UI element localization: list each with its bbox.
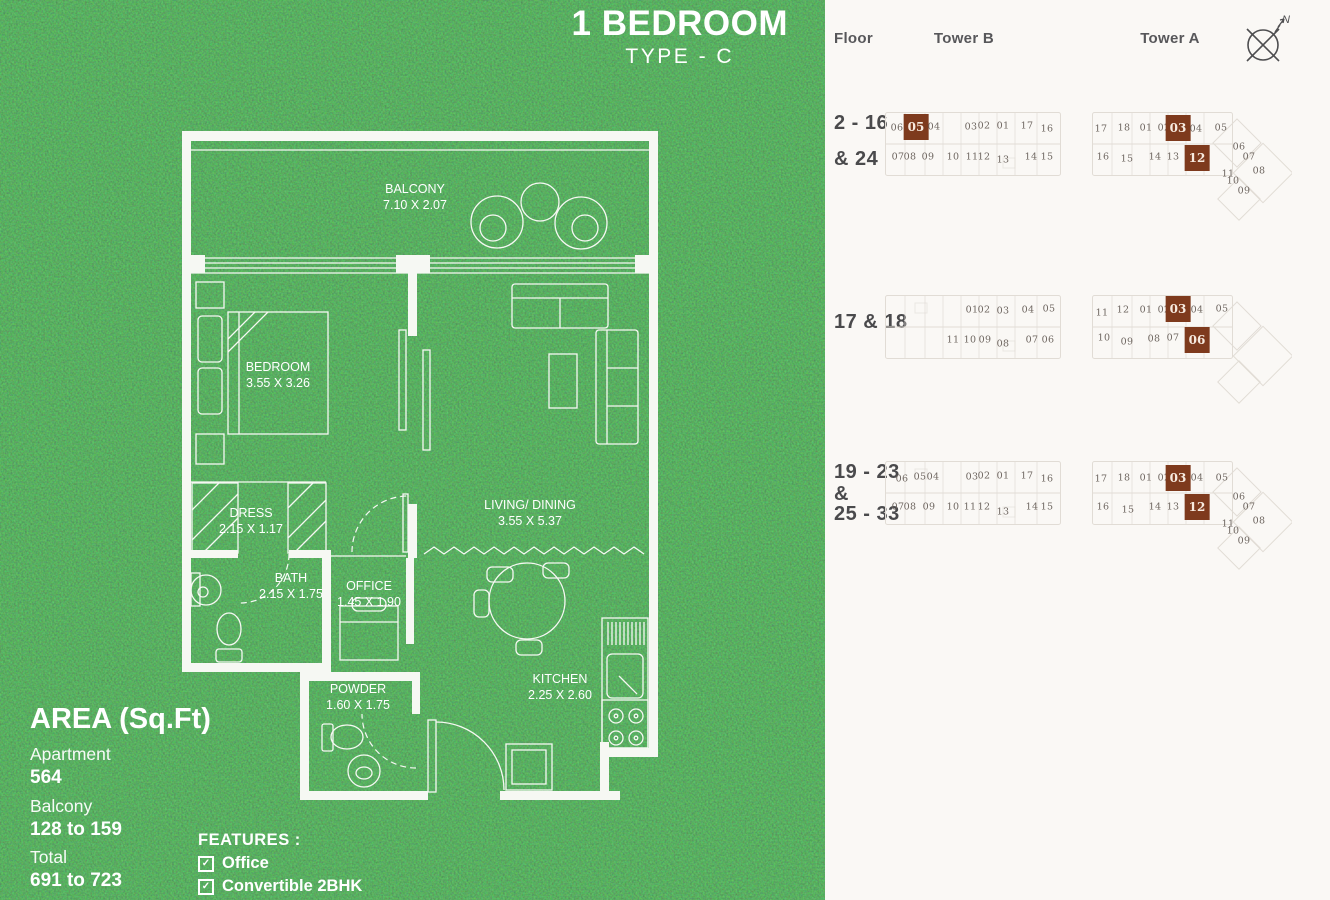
unit-13: 13: [1167, 152, 1180, 163]
unit-01: 01: [997, 121, 1010, 132]
unit-09: 09: [923, 502, 936, 513]
unit-10: 10: [964, 335, 977, 346]
bedroom-door-leaf: [403, 494, 408, 552]
unit-06: 06: [891, 123, 904, 134]
unit-04: 04: [928, 122, 941, 133]
balcony-furniture: [471, 183, 607, 249]
feature-label: Convertible 2BHK: [222, 877, 362, 896]
area-item-total: Total 691 to 723: [30, 847, 122, 892]
sliding-panel: [399, 330, 406, 430]
closet-zigzag: [424, 547, 644, 554]
unit-05: 05: [914, 472, 927, 483]
room-name: POWDER: [326, 681, 390, 697]
room-label-kitchen: KITCHEN2.25 X 2.60: [528, 671, 592, 704]
compass-icon: N: [1239, 12, 1291, 68]
unit-15: 15: [1121, 154, 1134, 165]
unit-15: 15: [1122, 505, 1135, 516]
features-block: FEATURES : ✓ Office ✓ Convertible 2BHK: [198, 831, 362, 896]
room-label-living: LIVING/ DINING3.55 X 5.37: [484, 497, 576, 530]
unit-01: 01: [1140, 123, 1153, 134]
room-dimensions: 2.15 X 1.17: [219, 521, 283, 537]
room-label-bedroom: BEDROOM3.55 X 3.26: [246, 359, 311, 392]
feature-label: Office: [222, 854, 269, 873]
area-item-balcony: Balcony 128 to 159: [30, 796, 122, 841]
unit-08: 08: [904, 502, 917, 513]
unit-04: 04: [1191, 473, 1204, 484]
room-label-bath: BATH2.15 X 1.75: [259, 570, 323, 603]
unit-18: 18: [1118, 473, 1131, 484]
features-heading: FEATURES :: [198, 831, 362, 850]
unit-08: 08: [1253, 166, 1266, 177]
unit-15: 15: [1041, 502, 1054, 513]
unit-06-highlighted: 06: [1185, 327, 1210, 353]
room-dimensions: 7.10 X 2.07: [383, 197, 447, 213]
room-name: KITCHEN: [528, 671, 592, 687]
plan-title: 1 BEDROOM TYPE - C: [572, 6, 788, 69]
room-label-office: OFFICE1.45 X 1.90: [337, 578, 401, 611]
area-label: Balcony: [30, 796, 122, 817]
unit-03: 03: [966, 472, 979, 483]
unit-04: 04: [1191, 305, 1204, 316]
north-label: N: [1282, 14, 1290, 26]
room-name: BEDROOM: [246, 359, 311, 375]
room-dimensions: 2.15 X 1.75: [259, 586, 323, 602]
unit-13: 13: [997, 507, 1010, 518]
unit-07: 07: [1167, 333, 1180, 344]
sliding-panel: [423, 350, 430, 450]
unit-17: 17: [1021, 471, 1034, 482]
unit-09: 09: [922, 152, 935, 163]
area-value: 128 to 159: [30, 819, 122, 841]
kitchen-sink: [607, 654, 643, 698]
unit-18: 18: [1118, 123, 1131, 134]
room-label-balcony: BALCONY7.10 X 2.07: [383, 181, 447, 214]
bath-fixtures: [191, 573, 242, 662]
unit-08: 08: [904, 152, 917, 163]
room-label-dress: DRESS2.15 X 1.17: [219, 505, 283, 538]
unit-12: 12: [978, 152, 991, 163]
keyplan-panel: Floor Tower B Tower A N 2 - 16 & 24 17 &…: [825, 0, 1330, 900]
area-value: 564: [30, 767, 111, 789]
unit-07: 07: [1243, 152, 1256, 163]
unit-01: 01: [966, 305, 979, 316]
feature-item-office: ✓ Office: [198, 854, 362, 873]
plan-section: 1 BEDROOM TYPE - C BALCONY7.10 X 2.07BED…: [0, 0, 825, 900]
entry-cabinet: [506, 744, 552, 790]
unit-07: 07: [1243, 502, 1256, 513]
floor-plan-drawing: [0, 0, 825, 900]
unit-06: 06: [896, 474, 909, 485]
unit-12-highlighted: 12: [1185, 494, 1210, 520]
area-item-apartment: Apartment 564: [30, 744, 111, 789]
unit-13: 13: [1167, 502, 1180, 513]
title-main: 1 BEDROOM: [572, 6, 788, 43]
powder-fixtures: [322, 724, 380, 787]
unit-02: 02: [978, 471, 991, 482]
header-floor: Floor: [834, 30, 873, 47]
sofa: [512, 284, 638, 444]
unit-03: 03: [997, 306, 1010, 317]
unit-17: 17: [1095, 474, 1108, 485]
title-sub: TYPE - C: [625, 45, 734, 69]
unit-16: 16: [1041, 124, 1054, 135]
room-dimensions: 3.55 X 3.26: [246, 375, 311, 391]
unit-07: 07: [1026, 335, 1039, 346]
unit-02: 02: [978, 121, 991, 132]
unit-03: 03: [965, 122, 978, 133]
entry-door: [428, 720, 552, 792]
unit-10: 10: [1098, 333, 1111, 344]
unit-14: 14: [1149, 502, 1162, 513]
unit-01: 01: [997, 471, 1010, 482]
unit-02: 02: [978, 305, 991, 316]
brochure-page: 1 BEDROOM TYPE - C BALCONY7.10 X 2.07BED…: [0, 0, 1330, 900]
room-name: LIVING/ DINING: [484, 497, 576, 513]
unit-09: 09: [1121, 337, 1134, 348]
side-table: [549, 354, 577, 408]
room-dimensions: 1.60 X 1.75: [326, 697, 390, 713]
room-name: DRESS: [219, 505, 283, 521]
room-name: OFFICE: [337, 578, 401, 594]
unit-05: 05: [1216, 304, 1229, 315]
unit-01: 01: [1140, 305, 1153, 316]
room-dimensions: 3.55 X 5.37: [484, 513, 576, 529]
unit-16: 16: [1097, 152, 1110, 163]
unit-16: 16: [1041, 474, 1054, 485]
area-value: 691 to 723: [30, 870, 122, 892]
unit-14: 14: [1026, 502, 1039, 513]
room-label-powder: POWDER1.60 X 1.75: [326, 681, 390, 714]
unit-10: 10: [947, 502, 960, 513]
kitchen-counter: [602, 618, 648, 748]
unit-17: 17: [1021, 121, 1034, 132]
unit-11: 11: [964, 502, 977, 513]
unit-05: 05: [1215, 123, 1228, 134]
unit-07: 07: [892, 152, 905, 163]
unit-11: 11: [1096, 308, 1109, 319]
check-icon: ✓: [198, 856, 214, 872]
unit-05: 05: [1216, 473, 1229, 484]
check-icon: ✓: [198, 879, 214, 895]
unit-11: 11: [966, 152, 979, 163]
unit-12-highlighted: 12: [1185, 145, 1210, 171]
unit-03-highlighted: 03: [1166, 115, 1191, 141]
unit-15: 15: [1041, 152, 1054, 163]
unit-12: 12: [1117, 305, 1130, 316]
room-dimensions: 1.45 X 1.90: [337, 594, 401, 610]
area-label: Apartment: [30, 744, 111, 765]
unit-08: 08: [1148, 334, 1161, 345]
unit-13: 13: [997, 155, 1010, 166]
unit-08: 08: [1253, 516, 1266, 527]
unit-05: 05: [1043, 304, 1056, 315]
area-heading: AREA (Sq.Ft): [30, 703, 211, 736]
unit-03-highlighted: 03: [1166, 296, 1191, 322]
unit-08: 08: [997, 339, 1010, 350]
unit-04: 04: [1190, 124, 1203, 135]
unit-14: 14: [1025, 152, 1038, 163]
unit-17: 17: [1095, 124, 1108, 135]
unit-04: 04: [1022, 305, 1035, 316]
feature-item-convertible: ✓ Convertible 2BHK: [198, 877, 362, 896]
unit-16: 16: [1097, 502, 1110, 513]
unit-01: 01: [1140, 473, 1153, 484]
unit-07: 07: [892, 502, 905, 513]
floor-label: & 24: [834, 148, 878, 171]
room-dimensions: 2.25 X 2.60: [528, 687, 592, 703]
dining-table: [474, 563, 569, 655]
floor-label: 2 - 16: [834, 112, 888, 135]
unit-10: 10: [947, 152, 960, 163]
header-tower-b: Tower B: [918, 30, 1010, 47]
area-label: Total: [30, 847, 122, 868]
unit-03-highlighted: 03: [1166, 465, 1191, 491]
unit-04: 04: [927, 472, 940, 483]
unit-09: 09: [1238, 186, 1251, 197]
unit-12: 12: [978, 502, 991, 513]
header-tower-a: Tower A: [1124, 30, 1216, 47]
room-name: BATH: [259, 570, 323, 586]
room-name: BALCONY: [383, 181, 447, 197]
unit-11: 11: [947, 335, 960, 346]
unit-09: 09: [1238, 536, 1251, 547]
unit-05-highlighted: 05: [904, 114, 929, 140]
unit-09: 09: [979, 335, 992, 346]
unit-14: 14: [1149, 152, 1162, 163]
unit-06: 06: [1042, 335, 1055, 346]
